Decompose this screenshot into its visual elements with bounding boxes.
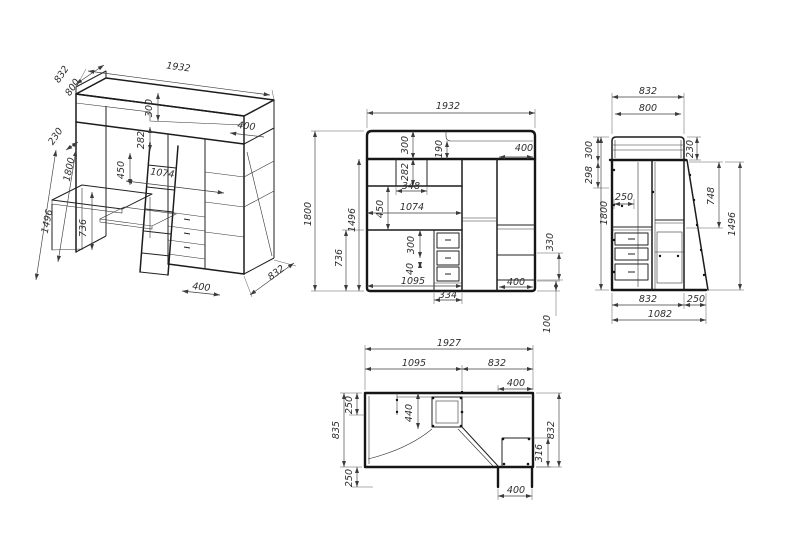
dim-iso-832-top: 832 (52, 64, 71, 85)
dim-front-1074: 1074 (400, 202, 424, 213)
dim-front-400-top: 400 (515, 143, 533, 154)
isometric-view: 1932 832 800 230 1800 1496 300 282 450 1… (36, 60, 296, 297)
dim-plan-835: 835 (331, 421, 342, 439)
dim-front-282: 282 (400, 163, 411, 181)
dim-side-250: 250 (615, 192, 633, 203)
dim-plan-316: 316 (534, 444, 545, 462)
dim-front-450: 450 (375, 200, 386, 218)
front-view: 1932 1800 736 1496 300 282 190 348 450 1… (303, 101, 563, 333)
dim-front-348: 348 (402, 181, 420, 192)
dim-iso-230: 230 (46, 126, 65, 147)
dim-plan-1095: 1095 (402, 358, 426, 369)
dim-plan-1927: 1927 (437, 338, 461, 349)
dim-iso-1800: 1800 (62, 157, 78, 183)
dim-side-748: 748 (706, 187, 717, 205)
dim-front-1932: 1932 (436, 101, 460, 112)
dim-front-1095: 1095 (401, 276, 425, 287)
dim-iso-400-top: 400 (237, 120, 256, 133)
dim-plan-250-top-left: 250 (344, 396, 355, 414)
dim-plan-400-top: 400 (507, 378, 525, 389)
side-view: 832 800 230 300 298 250 1800 748 1496 83… (584, 86, 744, 324)
dim-front-100: 100 (542, 315, 553, 333)
technical-drawing-sheet: 1932 832 800 230 1800 1496 300 282 450 1… (0, 0, 800, 533)
dim-side-800: 800 (639, 103, 657, 114)
dim-side-300: 300 (584, 141, 595, 159)
dim-front-330: 330 (545, 233, 556, 251)
dim-front-40: 40 (405, 263, 416, 275)
dim-iso-1932: 1932 (166, 60, 191, 74)
dim-front-1800: 1800 (303, 202, 314, 226)
dim-plan-400-bottom: 400 (507, 485, 525, 496)
dim-side-832-bottom: 832 (639, 294, 657, 305)
dim-iso-832-bottom: 832 (266, 263, 287, 283)
dim-iso-400-bottom: 400 (192, 281, 211, 294)
dim-iso-1496: 1496 (40, 209, 56, 235)
plan-structure (365, 393, 533, 487)
plan-view: 1927 1095 832 400 250 835 250 440 316 83… (331, 338, 562, 500)
dim-side-230: 230 (685, 140, 696, 158)
dim-side-250-bottom: 250 (687, 294, 705, 305)
dim-iso-736: 736 (78, 219, 89, 237)
iso-dimensions: 1932 832 800 230 1800 1496 300 282 450 1… (36, 60, 296, 297)
dim-side-298: 298 (584, 166, 595, 184)
dim-iso-450: 450 (116, 161, 127, 179)
dim-front-300-drawer: 300 (406, 236, 417, 254)
front-structure (367, 131, 535, 291)
dim-side-1496: 1496 (727, 212, 738, 236)
front-dimensions: 1932 1800 736 1496 300 282 190 348 450 1… (303, 101, 563, 333)
dim-iso-300: 300 (144, 99, 155, 117)
dim-front-1496: 1496 (347, 208, 358, 232)
dim-iso-1074: 1074 (150, 167, 175, 181)
side-dimensions: 832 800 230 300 298 250 1800 748 1496 83… (584, 86, 744, 324)
dim-plan-440: 440 (404, 404, 415, 422)
dim-plan-832-top: 832 (488, 358, 506, 369)
dim-plan-832-right: 832 (546, 421, 557, 439)
dim-side-832-top: 832 (639, 86, 657, 97)
dim-front-400-bottom: 400 (507, 277, 525, 288)
dim-iso-282: 282 (136, 131, 147, 149)
dim-front-736: 736 (334, 249, 345, 267)
drawing-svg: 1932 832 800 230 1800 1496 300 282 450 1… (0, 0, 800, 533)
dim-front-334: 334 (439, 290, 457, 301)
dim-front-190: 190 (434, 140, 445, 158)
dim-front-300-top: 300 (400, 136, 411, 154)
dim-side-1800: 1800 (599, 201, 610, 225)
dim-side-1082: 1082 (648, 309, 672, 320)
dim-plan-250-bottom-left: 250 (344, 469, 355, 487)
